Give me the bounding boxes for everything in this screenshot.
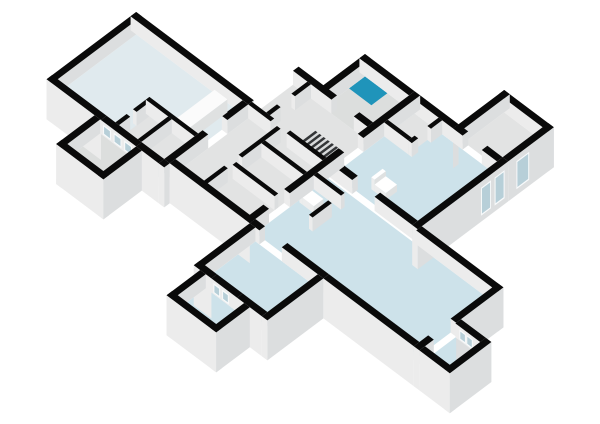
wall-face-sw xyxy=(444,369,450,413)
wall-face-sw xyxy=(291,94,295,111)
wall-face-sw xyxy=(309,215,313,232)
wall-face-sw xyxy=(133,109,137,126)
wall-face-sw xyxy=(408,140,412,157)
wall-face-sw xyxy=(98,175,104,219)
wall-face-se xyxy=(275,194,279,211)
box-face-sw xyxy=(371,177,374,191)
wall-face-se xyxy=(341,193,345,210)
wall-face-sw xyxy=(414,346,420,390)
floor-plan-viewport xyxy=(0,0,600,424)
wall-face-sw xyxy=(262,316,268,360)
wall-face-sw xyxy=(159,163,165,207)
wall-face-se xyxy=(164,163,170,207)
wall-face-sw xyxy=(211,328,217,372)
floor-plan-3d-render xyxy=(0,0,600,424)
wall-hall-se-corner xyxy=(159,159,170,207)
wall-face-sw xyxy=(427,126,431,143)
